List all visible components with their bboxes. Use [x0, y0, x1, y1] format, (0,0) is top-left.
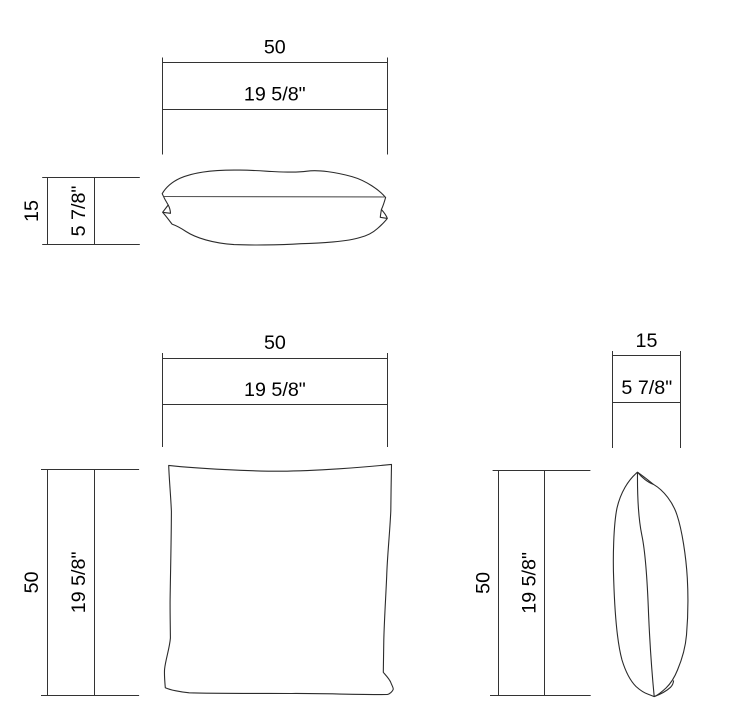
svg-text:15: 15	[21, 200, 43, 222]
svg-text:19 5/8": 19 5/8"	[244, 83, 306, 105]
svg-text:5 7/8": 5 7/8"	[68, 186, 90, 237]
svg-text:50: 50	[472, 572, 494, 594]
svg-text:19 5/8": 19 5/8"	[519, 552, 541, 614]
svg-text:19 5/8": 19 5/8"	[68, 552, 90, 614]
svg-text:19 5/8": 19 5/8"	[244, 379, 306, 401]
svg-text:50: 50	[264, 37, 286, 59]
svg-text:15: 15	[636, 330, 658, 352]
svg-text:50: 50	[264, 332, 286, 354]
svg-text:5 7/8": 5 7/8"	[621, 377, 672, 399]
svg-text:50: 50	[21, 571, 43, 593]
